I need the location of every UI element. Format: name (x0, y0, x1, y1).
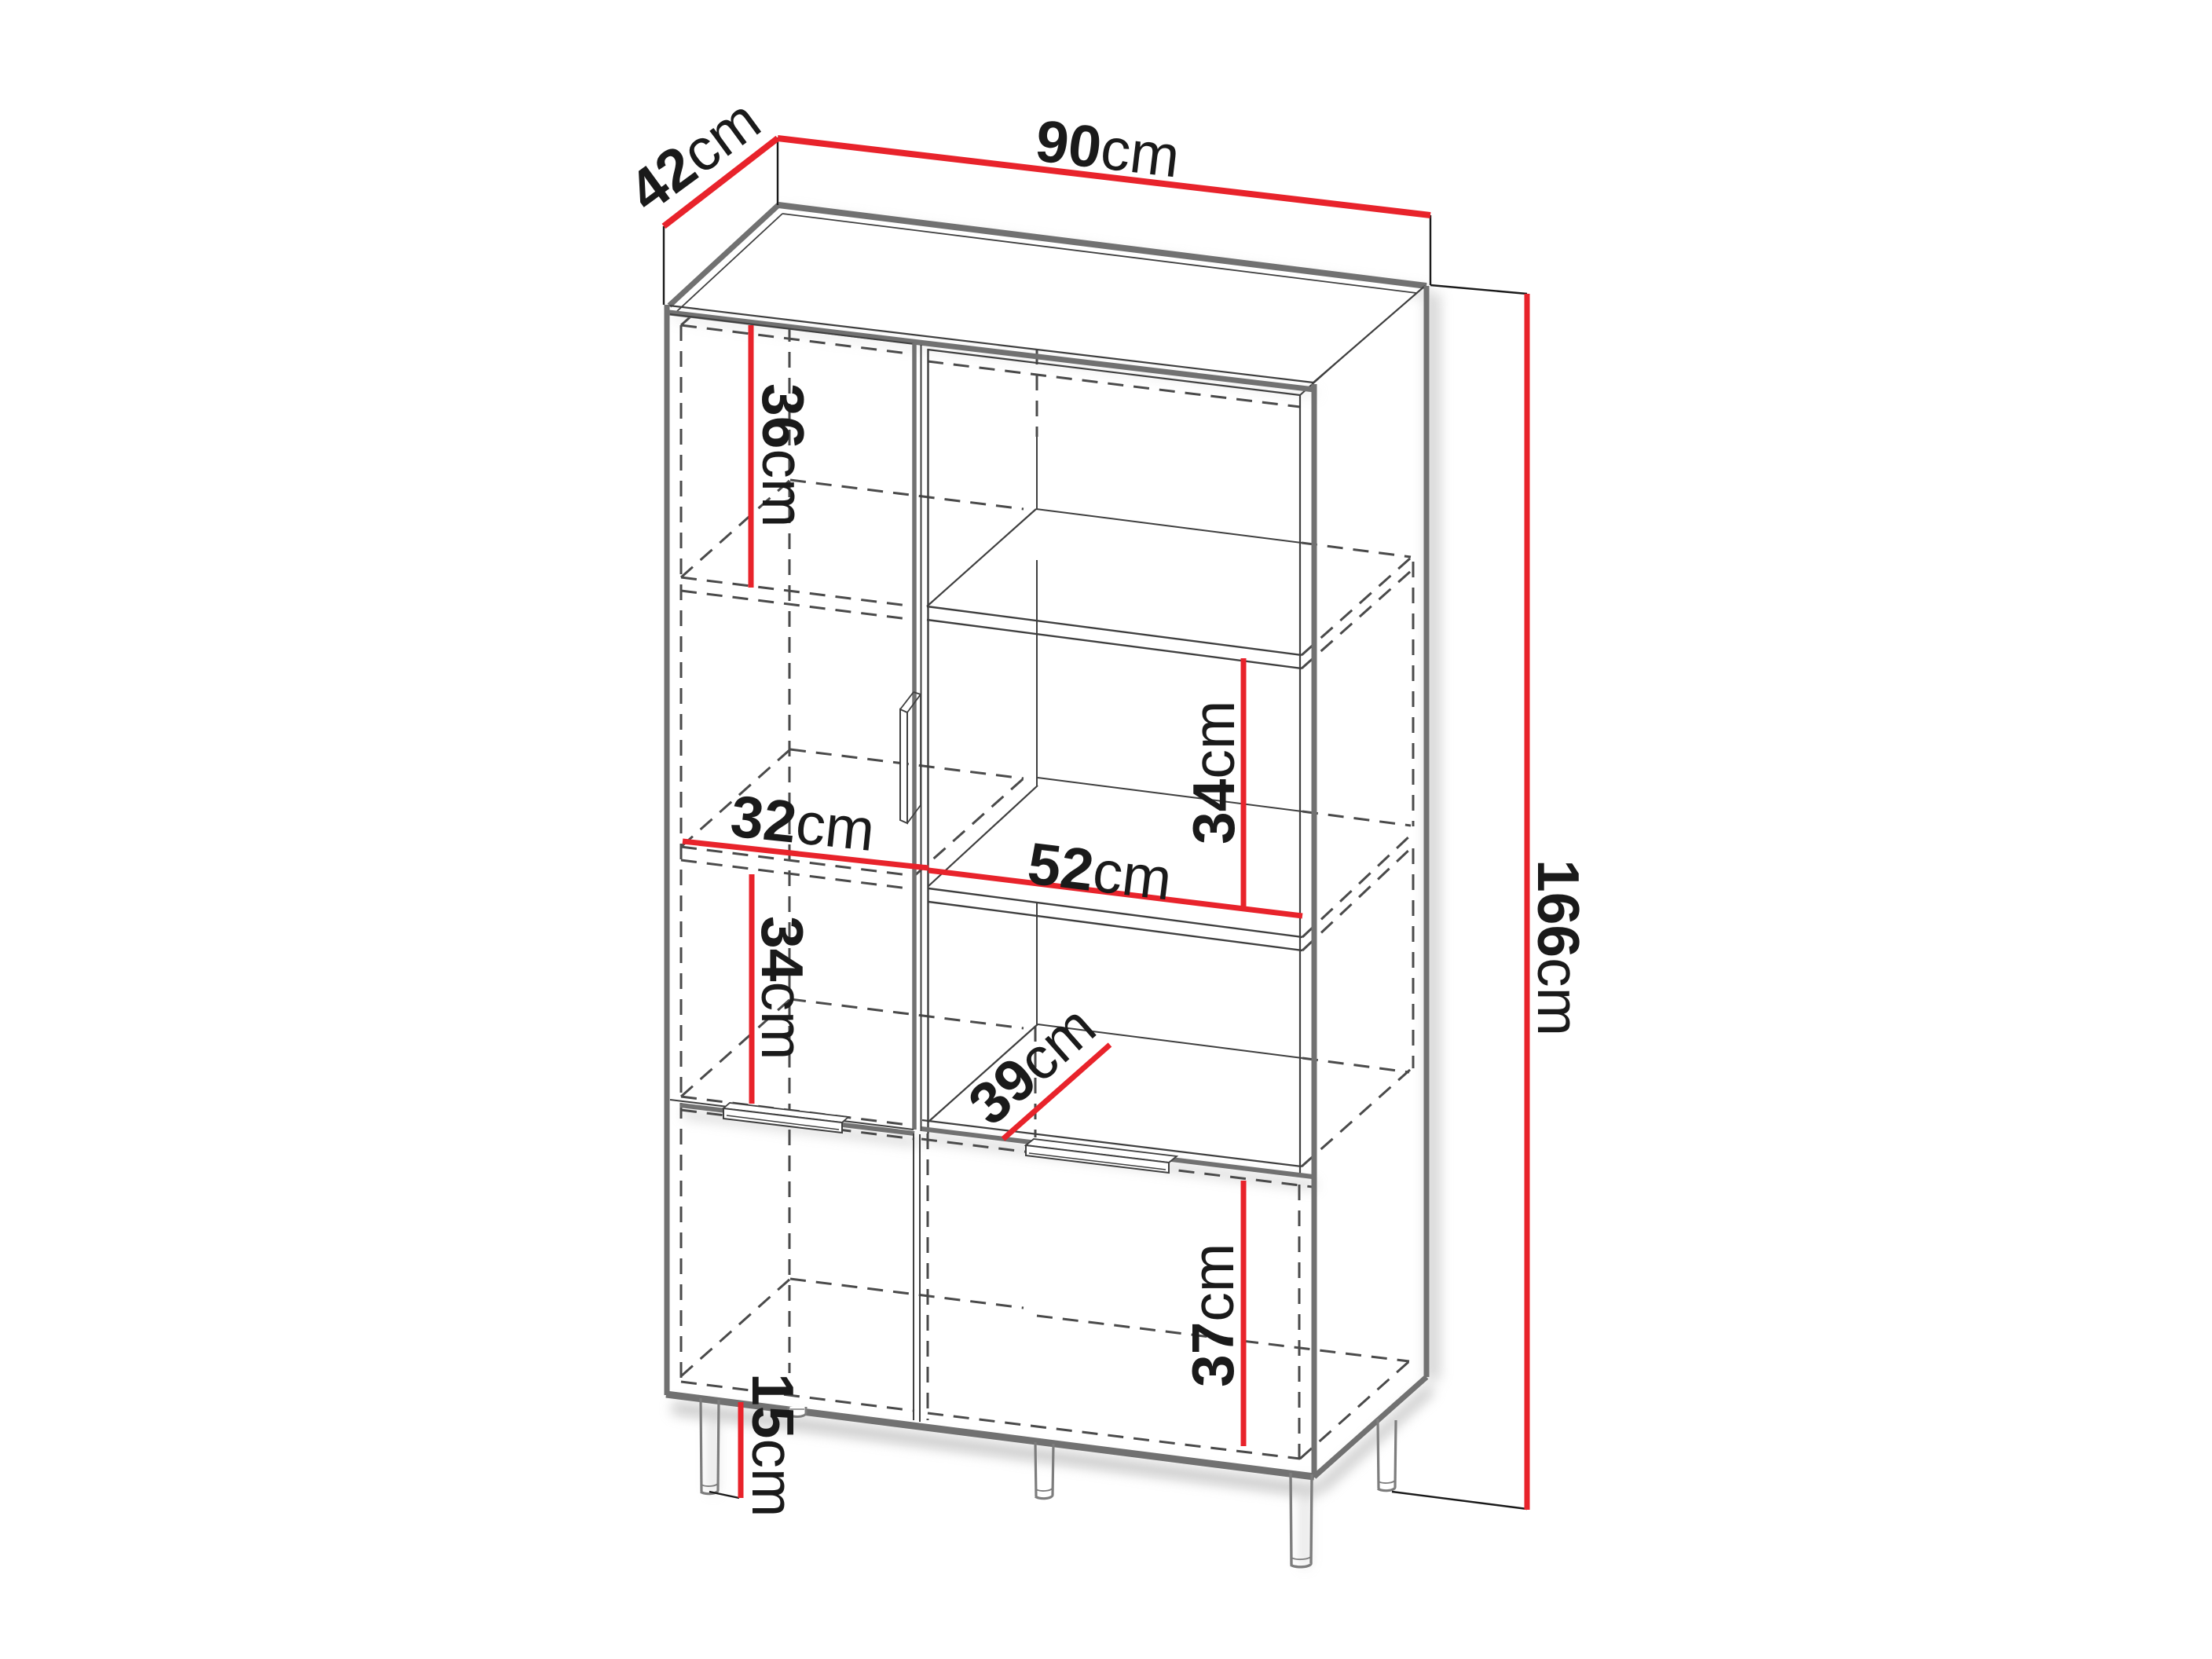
svg-text:34cm: 34cm (1181, 701, 1247, 844)
svg-text:36cm: 36cm (750, 383, 816, 527)
svg-text:15cm: 15cm (740, 1373, 806, 1517)
svg-text:37cm: 37cm (1180, 1243, 1246, 1387)
svg-text:166cm: 166cm (1525, 859, 1591, 1036)
svg-text:34cm: 34cm (749, 916, 815, 1060)
